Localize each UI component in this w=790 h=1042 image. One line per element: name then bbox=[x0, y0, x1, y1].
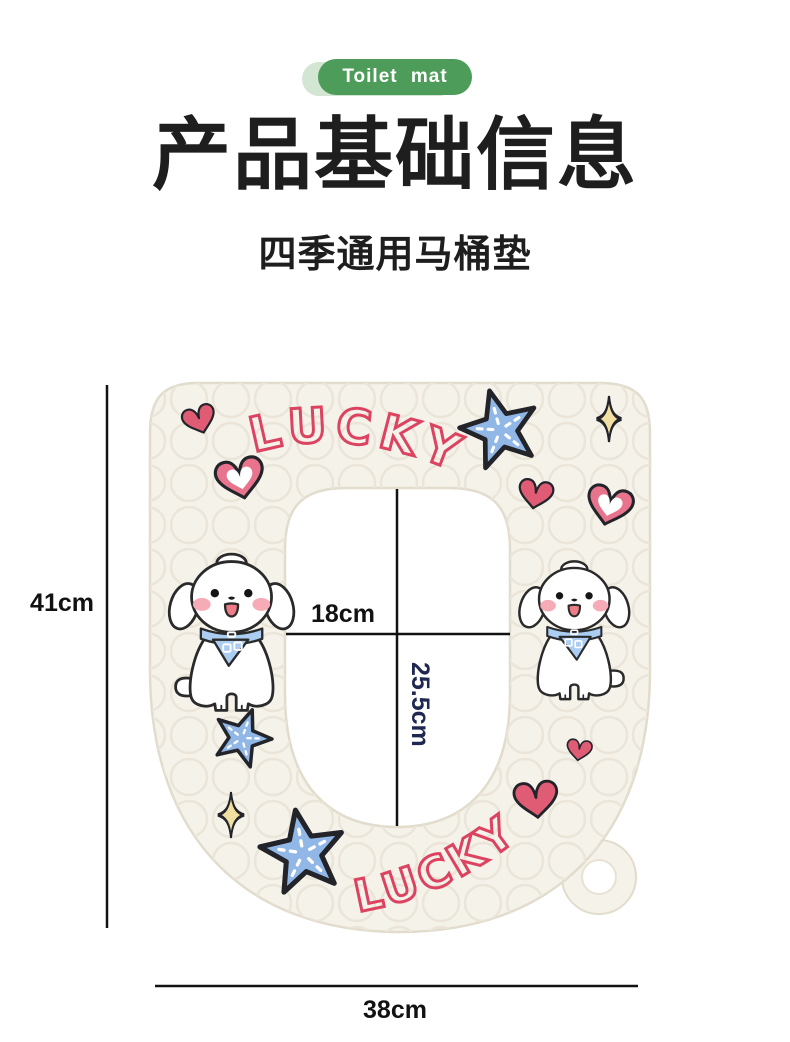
product-infographic: Toilet mat 产品基础信息 四季通用马桶垫 bbox=[0, 0, 790, 1042]
dimension-label-overall-width: 38cm bbox=[0, 996, 790, 1025]
toilet-mat-illustration: LUCKY LUCKY bbox=[0, 0, 790, 1042]
dimension-label-opening-depth: 25.5cm bbox=[405, 662, 434, 747]
dimension-label-opening-width: 18cm bbox=[311, 600, 375, 629]
dimension-label-overall-height: 41cm bbox=[20, 589, 94, 618]
